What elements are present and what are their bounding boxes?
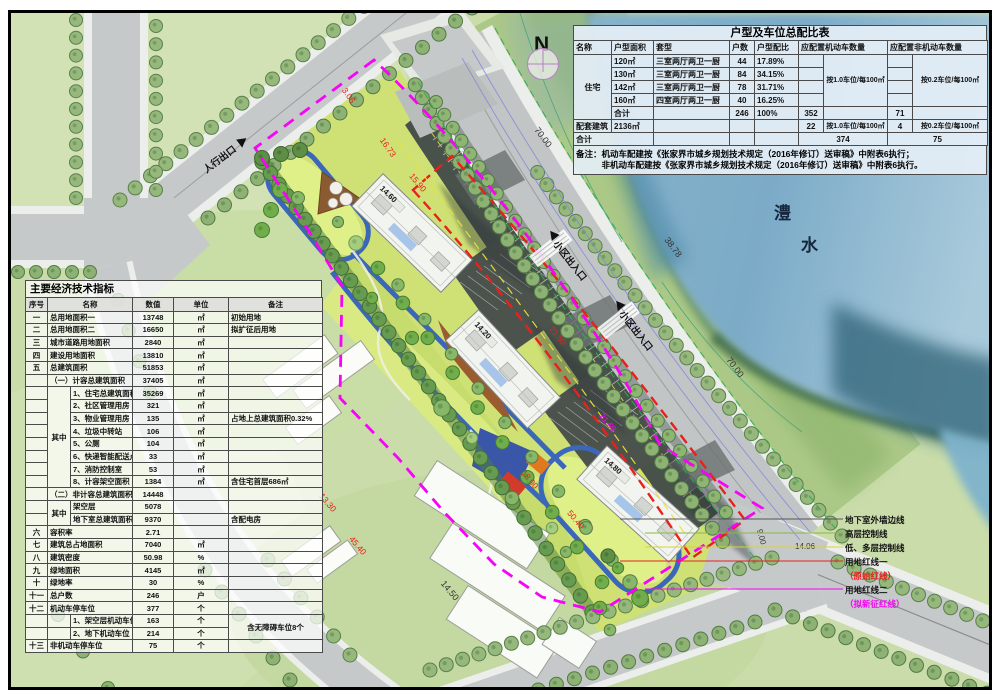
- svg-text:水: 水: [801, 235, 819, 255]
- svg-text:澧: 澧: [774, 203, 791, 223]
